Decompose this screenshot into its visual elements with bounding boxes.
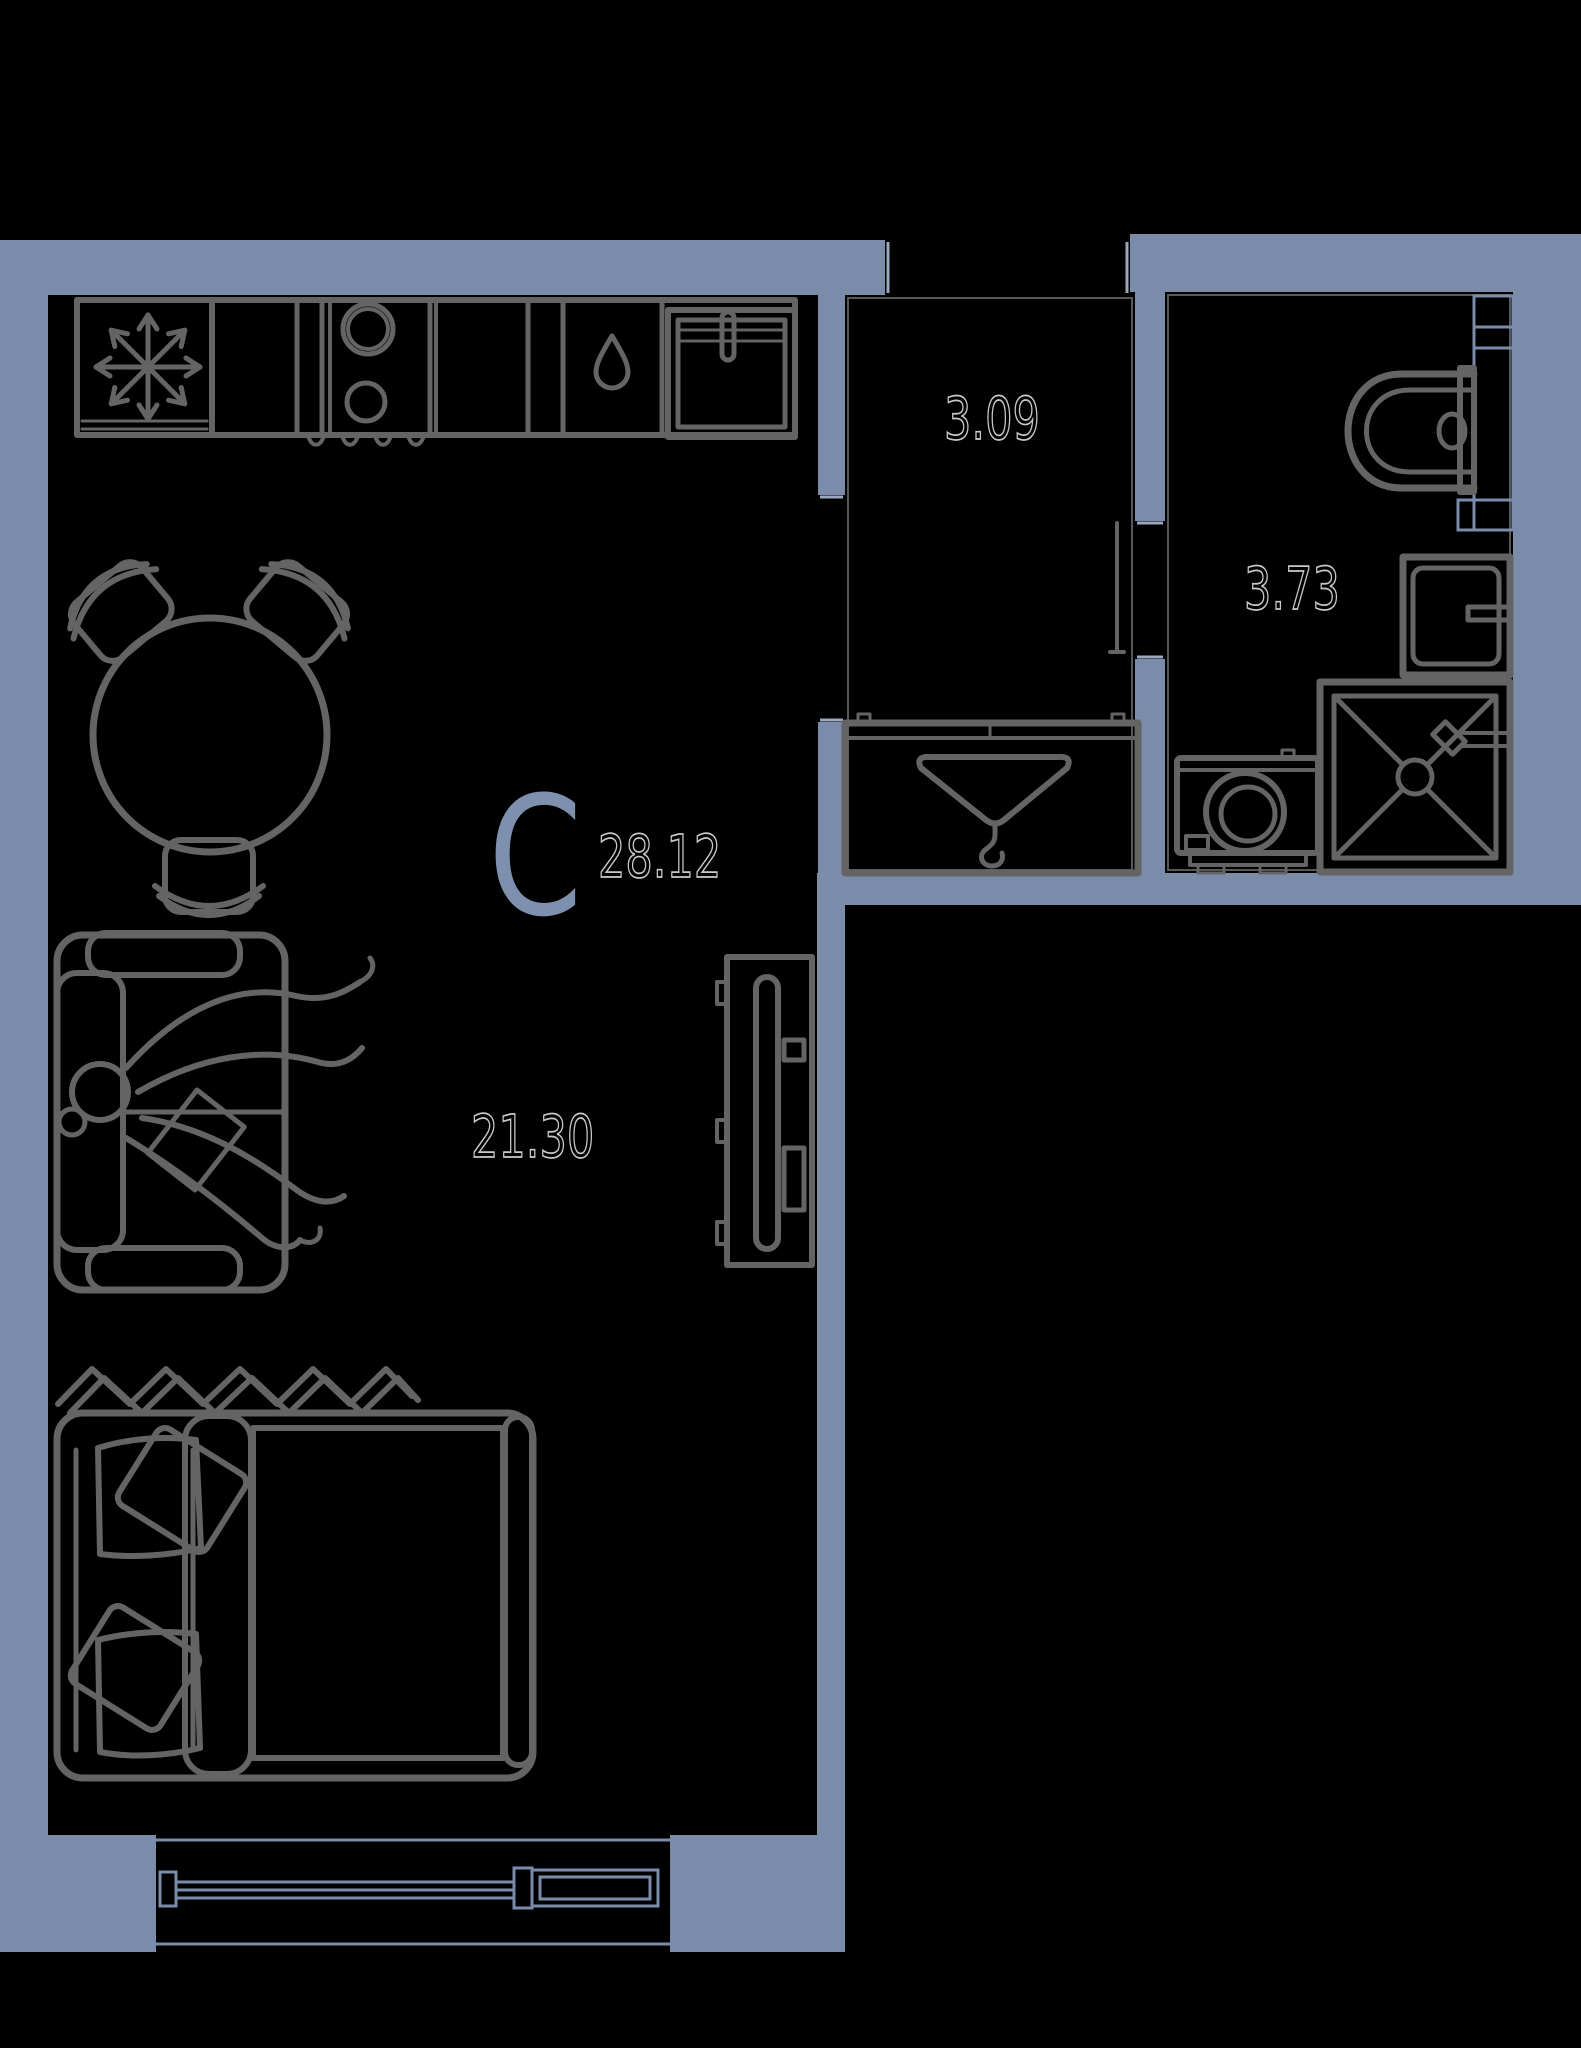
washing-machine-icon [1177,750,1318,873]
kitchen-sink-icon [668,310,795,437]
tv-icon [756,977,778,1249]
sofa [57,933,285,1290]
window [156,1840,670,1944]
person-figure [59,958,373,1247]
total-area-label: 28.12 [598,827,767,886]
floor-plan: C 28.12 21.30 3.09 3.73 [0,0,1581,2048]
toilet-icon [1348,368,1474,492]
unit-type-label: C [488,775,603,940]
living-area-label: 21.30 [471,1107,640,1166]
book [148,1090,245,1190]
bathroom-door-leaf [1110,523,1124,652]
bathroom-area-label: 3.73 [1244,559,1375,618]
water-drop-icon [596,336,628,388]
blanket-zigzag [70,1378,418,1413]
tv-unit [717,957,812,1265]
snowflake-icon [96,315,200,419]
hallway-area-label: 3.09 [944,389,1075,448]
washbasin-icon [1403,557,1510,675]
dishwasher [596,336,628,388]
walls [0,234,1581,1952]
stove-icon [308,304,424,445]
shower-icon [1320,682,1510,872]
hanger-icon [919,757,1068,866]
floor-plan-drawing [0,0,1581,2048]
bed [57,1369,533,1778]
wardrobe [845,714,1138,873]
door-openings [820,242,1163,720]
